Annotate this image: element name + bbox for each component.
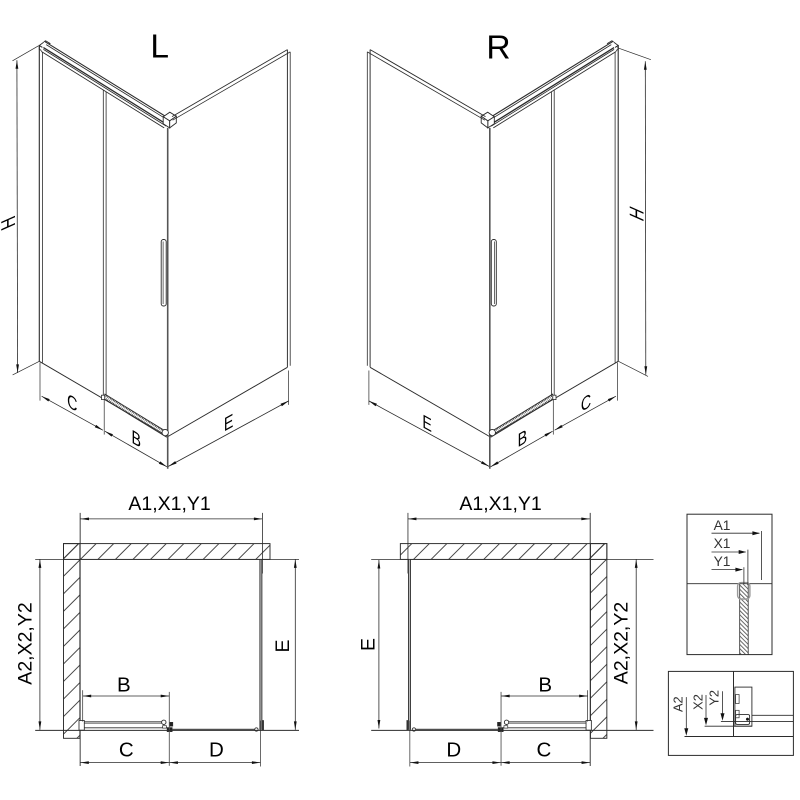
svg-text:B: B (538, 674, 552, 697)
svg-text:A2: A2 (671, 696, 686, 712)
svg-text:D: D (209, 738, 224, 761)
svg-text:L: L (150, 29, 169, 66)
svg-text:A2,X2,Y2: A2,X2,Y2 (14, 602, 36, 684)
svg-text:X1: X1 (714, 536, 731, 551)
svg-text:Y2: Y2 (707, 690, 722, 706)
svg-text:A1: A1 (714, 518, 731, 533)
svg-text:E: E (272, 639, 294, 652)
svg-text:A2,X2,Y2: A2,X2,Y2 (611, 602, 633, 684)
svg-text:A1,X1,Y1: A1,X1,Y1 (128, 493, 210, 515)
svg-text:Y1: Y1 (714, 554, 731, 569)
svg-text:A1,X1,Y1: A1,X1,Y1 (459, 493, 541, 515)
svg-text:D: D (446, 738, 461, 761)
svg-text:B: B (117, 674, 131, 697)
svg-text:C: C (536, 738, 551, 761)
svg-text:C: C (119, 738, 134, 761)
svg-text:E: E (358, 638, 380, 651)
svg-text:R: R (486, 29, 510, 66)
svg-text:X2: X2 (691, 694, 706, 710)
